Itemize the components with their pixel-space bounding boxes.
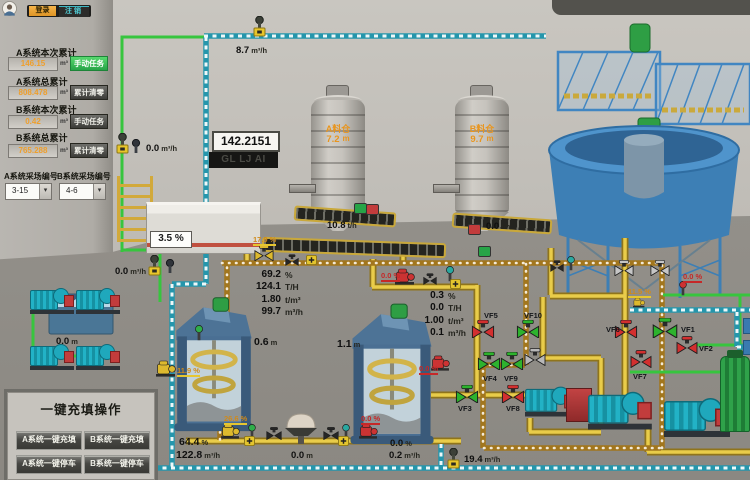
feed-a-unit: t/h xyxy=(348,221,357,230)
top-flow-unit: m³/h xyxy=(251,46,267,55)
shutoff-valve-icon[interactable] xyxy=(423,273,437,285)
tank-flow-readout: 0.0 m³/h xyxy=(115,266,146,277)
sensor-icon xyxy=(678,281,688,296)
acc-b-total-value[interactable]: 765.288 xyxy=(8,144,58,158)
top-flow-value: 8.7 xyxy=(236,45,249,56)
mixer1-level-unit: m xyxy=(271,338,278,347)
silo-b xyxy=(455,100,509,231)
valve-vf7-icon[interactable] xyxy=(630,350,652,368)
sensor-icon xyxy=(566,256,576,271)
valve-vf1-label: VF1 xyxy=(681,325,695,334)
standby-valve-icon[interactable] xyxy=(614,260,634,276)
valve-vf7-label: VF7 xyxy=(633,372,647,381)
valve-vf2-label: VF2 xyxy=(699,344,713,353)
mixer1-inlet-pump-icon[interactable] xyxy=(156,360,176,377)
mixer2-level-value: 1.1 xyxy=(337,338,352,350)
left-flow-readout: 0.0 m³/h xyxy=(146,143,177,154)
silo-b-feeder xyxy=(433,184,460,193)
gauge-icon xyxy=(165,259,175,273)
water-pump[interactable] xyxy=(30,284,74,314)
feed-b-unit: t/h xyxy=(501,222,510,231)
discharge-b-pump-icon[interactable] xyxy=(359,423,378,439)
valve-vf5-icon[interactable] xyxy=(471,320,495,338)
unit-label: m³ xyxy=(60,118,68,125)
silo-a-level-value: 7.2 xyxy=(326,134,339,145)
flowmeter-icon xyxy=(253,16,266,37)
silo-a-feeder xyxy=(289,184,316,193)
fill-a-flow: 122.8m³/h xyxy=(176,449,220,461)
manual-task-b-button[interactable]: 手动任务 xyxy=(70,114,108,129)
onekey-fill-a-button[interactable]: A系统一键充填 xyxy=(16,431,82,450)
site-b-label: B系统采场编号 xyxy=(57,171,111,182)
chevron-down-icon[interactable]: ▾ xyxy=(93,184,105,199)
instrument-box-icon xyxy=(338,436,349,446)
acc-b-current-row: 0.42 m³ 手动任务 xyxy=(8,114,108,129)
shutoff-valve-icon[interactable] xyxy=(266,427,282,440)
hopper-level: 0.0m xyxy=(291,450,313,461)
counter-code-display: GL LJ AI ACC xyxy=(209,152,278,168)
thickener-tank xyxy=(538,0,750,300)
shutoff-valve-icon[interactable] xyxy=(550,260,564,272)
onekey-panel: 一键充填操作 A系统一键充填 B系统一键充填 A系统一键停车 B系统一键停车 xyxy=(4,389,158,480)
user-avatar-icon[interactable] xyxy=(2,1,17,16)
conveyor-motor-icon xyxy=(478,246,491,257)
gauge-icon xyxy=(131,139,141,153)
acc-b-total-row: 765.288 m³ 累计清零 xyxy=(8,143,108,158)
fill-b-flow: 0.2m³/h xyxy=(389,450,420,461)
feed-valve-opening: 17.9 % xyxy=(253,235,276,246)
sensor-icon xyxy=(194,325,204,341)
tank-flow-value: 0.0 xyxy=(115,266,128,277)
valve-vf10-icon[interactable] xyxy=(516,320,540,338)
fill-a-pct: 64.4% xyxy=(179,436,208,448)
valve-vf3-label: VF3 xyxy=(458,404,472,413)
valve-vf6-label: VF6 xyxy=(606,325,620,334)
onekey-stop-b-button[interactable]: B系统一键停车 xyxy=(84,455,150,474)
silo-a-feed-readout: 10.8 t/h xyxy=(327,220,357,231)
site-b-value: 4-6 xyxy=(60,184,93,199)
shutoff-valve-icon[interactable] xyxy=(323,427,339,440)
acc-a-total-value[interactable]: 808.478 xyxy=(8,86,58,100)
feed-a-value: 10.8 xyxy=(327,220,346,231)
flowmeter-icon xyxy=(447,448,460,469)
valve-vf1-icon[interactable] xyxy=(652,318,678,338)
acc-a-current-row: 146.15 m³ 手动任务 xyxy=(8,56,108,71)
equipment-box xyxy=(743,340,750,355)
flowmeter-icon xyxy=(148,255,161,276)
valve-vf2-icon[interactable] xyxy=(676,336,698,354)
onekey-fill-b-button[interactable]: B系统一键充填 xyxy=(84,431,150,450)
top-flow-readout: 8.7 m³/h xyxy=(236,45,267,56)
flocculant-level-box: 3.5 % xyxy=(150,231,192,248)
silo-a-level: 7.2 m xyxy=(311,134,365,145)
slurry-b-readout: 0.3% 0.0T/H 1.00t/m³ 0.1m³/h xyxy=(410,290,466,339)
conveyor-motor-icon xyxy=(366,204,379,215)
onekey-stop-a-button[interactable]: A系统一键停车 xyxy=(16,455,82,474)
hopper xyxy=(284,410,318,446)
thickener-under-opening: 11.5 % xyxy=(628,287,651,298)
unit-label: m³ xyxy=(60,147,68,154)
flowmeter-icon xyxy=(116,133,129,154)
standby-valve-icon[interactable] xyxy=(650,260,670,276)
valve-vf4-label: VF4 xyxy=(483,374,497,383)
logout-button[interactable]: 注销 xyxy=(59,6,89,17)
feed-valve-icon[interactable] xyxy=(254,245,274,261)
standby-valve-icon[interactable] xyxy=(524,348,546,366)
discharge-a-pump-icon[interactable] xyxy=(221,423,240,439)
reset-total-b-button[interactable]: 累计清零 xyxy=(70,143,108,158)
thickener-right-opening: 0.0 % xyxy=(683,272,702,283)
feed-b-value: 0.0 xyxy=(486,221,499,232)
onekey-title: 一键充填操作 xyxy=(7,399,155,418)
mixer2-drain-opening: 0.0 % xyxy=(419,364,438,375)
green-motor[interactable] xyxy=(720,356,750,432)
auth-bar: 登录 注销 xyxy=(27,5,91,17)
fill-b-pct: 0.0% xyxy=(390,438,412,449)
silo-b-level: 9.7 m xyxy=(455,134,509,145)
discharge-a-opening: 26.6 % xyxy=(224,414,247,425)
water-pump[interactable] xyxy=(76,284,120,314)
site-a-select[interactable]: 3-15 ▾ xyxy=(5,183,52,200)
counter-display: 142.2151 xyxy=(212,131,280,152)
valve-vf5-label: VF5 xyxy=(484,311,498,320)
site-a-value: 3-15 xyxy=(6,184,39,199)
silo-b-feed-readout: 0.0 t/h xyxy=(486,221,510,232)
site-a-label: A系统采场编号 xyxy=(4,171,58,182)
return-flow-readout: 19.4m³/h xyxy=(464,454,500,465)
acc-a-total-row: 808.478 m³ 累计清零 xyxy=(8,85,108,100)
equipment-box xyxy=(743,318,750,334)
water-level-value: 0.0 xyxy=(56,336,69,347)
mixer2-level: 1.1 m xyxy=(337,338,360,350)
manual-task-a-button[interactable]: 手动任务 xyxy=(70,56,108,71)
shutoff-valve-icon[interactable] xyxy=(285,254,299,266)
left-flow-unit: m³/h xyxy=(161,144,177,153)
water-level-unit: m xyxy=(71,337,78,346)
acc-b-current-value[interactable]: 0.42 xyxy=(8,115,58,129)
valve-vf8-icon[interactable] xyxy=(501,385,525,403)
valve-vf8-label: VF8 xyxy=(506,404,520,413)
water-pump[interactable] xyxy=(76,340,120,370)
login-button[interactable]: 登录 xyxy=(29,6,56,16)
mixer2-level-unit: m xyxy=(354,340,361,349)
site-b-select[interactable]: 4-6 ▾ xyxy=(59,183,106,200)
unit-label: m³ xyxy=(60,89,68,96)
valve-vf10-label: VF10 xyxy=(524,311,542,320)
silo-b-level-unit: m xyxy=(487,134,494,145)
instrument-box-icon xyxy=(244,436,255,446)
conveyor-motor-icon xyxy=(468,224,481,235)
silo-a-level-unit: m xyxy=(343,134,350,145)
mixer1-inlet-opening: 11.9 % xyxy=(177,366,200,377)
tank-flow-unit: m³/h xyxy=(130,267,146,276)
left-flow-value: 0.0 xyxy=(146,143,159,154)
filling-pump[interactable] xyxy=(588,386,652,430)
mixer1-level: 0.6 m xyxy=(254,336,277,348)
instrument-box-icon xyxy=(450,279,461,289)
valve-vf3-icon[interactable] xyxy=(455,385,479,403)
valve-vf9-label: VF9 xyxy=(504,374,518,383)
instrument-box-icon xyxy=(306,255,317,265)
unit-label: m³ xyxy=(60,60,68,67)
discharge-b-opening: 0.0 % xyxy=(361,414,380,425)
water-tank-level: 0.0 m xyxy=(56,336,78,347)
reset-total-a-button[interactable]: 累计清零 xyxy=(70,85,108,100)
mixer1-level-value: 0.6 xyxy=(254,336,269,348)
valve-vf9-icon[interactable] xyxy=(500,352,524,370)
acc-a-current-value[interactable]: 146.15 xyxy=(8,57,58,71)
mixer2-feed-opening: 0.0 % xyxy=(381,271,400,282)
chevron-down-icon[interactable]: ▾ xyxy=(39,184,51,199)
slurry-a-readout: 69.2% 124.1T/H 1.80t/m³ 99.7m³/h xyxy=(247,269,303,318)
silo-b-level-value: 9.7 xyxy=(470,134,483,145)
valve-vf4-icon[interactable] xyxy=(477,352,501,370)
hmi-screen: 登录 注销 A系统本次累计 146.15 m³ 手动任务 A系统总累计 808.… xyxy=(0,0,750,480)
